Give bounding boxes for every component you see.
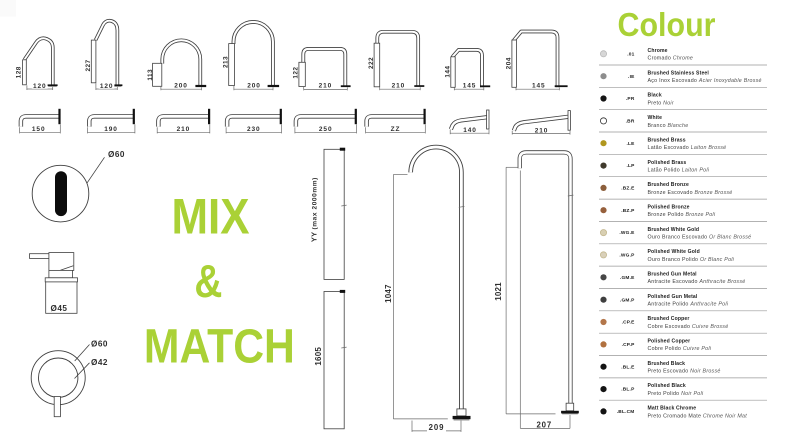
- svg-text:210: 210: [177, 126, 191, 133]
- svg-text:207: 207: [536, 420, 552, 429]
- svg-text:Preto Noir: Preto Noir: [648, 100, 674, 106]
- svg-text:230: 230: [247, 126, 261, 133]
- svg-text:150: 150: [32, 126, 46, 133]
- svg-text:1047: 1047: [384, 284, 393, 303]
- svg-text:Aço Inox Escovado Acier Inoxyd: Aço Inox Escovado Acier Inoxydable Bross…: [648, 78, 762, 84]
- svg-text:Brushed Black: Brushed Black: [648, 361, 686, 367]
- svg-text:.BZ.P: .BZ.P: [621, 208, 635, 214]
- svg-text:210: 210: [392, 83, 406, 90]
- svg-text:Polished Copper: Polished Copper: [648, 339, 691, 345]
- svg-text:1021: 1021: [494, 282, 503, 301]
- svg-text:Antracite Escovado Anthracite: Antracite Escovado Anthracite Brossé: [648, 279, 746, 285]
- svg-text:Ouro Branco Polido Or Blanc Po: Ouro Branco Polido Or Blanc Poli: [648, 257, 735, 263]
- svg-text:Black: Black: [648, 93, 662, 99]
- svg-text:Ø60: Ø60: [91, 340, 108, 349]
- svg-text:.BL.P: .BL.P: [621, 387, 635, 393]
- svg-text:.BZ.E: .BZ.E: [621, 186, 635, 192]
- svg-text:Polished White Gold: Polished White Gold: [648, 249, 700, 255]
- svg-text:Ø45: Ø45: [51, 304, 68, 313]
- svg-text:Brushed Stainless Steel: Brushed Stainless Steel: [648, 70, 710, 76]
- svg-text:&: &: [194, 255, 222, 307]
- svg-text:120: 120: [33, 83, 47, 90]
- svg-text:200: 200: [174, 83, 188, 90]
- svg-text:Preto Polido Noir Poli: Preto Polido Noir Poli: [648, 391, 704, 397]
- svg-text:Brushed Gun Metal: Brushed Gun Metal: [648, 272, 698, 278]
- svg-text:Brushed Brass: Brushed Brass: [648, 137, 686, 143]
- svg-text:Matt Black Chrome: Matt Black Chrome: [648, 406, 697, 412]
- svg-text:MATCH: MATCH: [144, 321, 295, 374]
- svg-text:210: 210: [535, 128, 549, 135]
- svg-text:Cromado Chrome: Cromado Chrome: [648, 56, 694, 62]
- svg-text:Polished Gun Metal: Polished Gun Metal: [648, 294, 698, 300]
- svg-text:.IE: .IE: [628, 74, 635, 80]
- svg-text:Ø60: Ø60: [108, 150, 125, 159]
- svg-text:200: 200: [247, 83, 261, 90]
- svg-text:YY (max 2000mm): YY (max 2000mm): [310, 177, 319, 242]
- svg-text:White: White: [648, 115, 663, 121]
- svg-text:145: 145: [532, 83, 546, 90]
- svg-text:Antracite Polido Anthracite Po: Antracite Polido Anthracite Poli: [648, 302, 729, 308]
- svg-text:.WG.P: .WG.P: [619, 253, 635, 259]
- svg-text:209: 209: [429, 423, 445, 432]
- svg-text:144: 144: [445, 66, 452, 78]
- svg-text:Cobre Polido Cuivre Poli: Cobre Polido Cuivre Poli: [648, 346, 712, 352]
- svg-text:Ouro Branco Escovado Or Blanc: Ouro Branco Escovado Or Blanc Brossé: [648, 235, 752, 241]
- svg-text:.GM.P: .GM.P: [620, 297, 635, 303]
- svg-text:Chrome: Chrome: [648, 48, 668, 54]
- svg-text:.BL.CM: .BL.CM: [617, 409, 635, 415]
- svg-text:Preto Cromado Mate Chrome Noir: Preto Cromado Mate Chrome Noir Mat: [648, 413, 748, 419]
- svg-text:227: 227: [85, 59, 92, 71]
- svg-text:Branco Blanche: Branco Blanche: [648, 123, 689, 129]
- svg-text:ZZ: ZZ: [391, 126, 401, 133]
- svg-text:Cobre Escovado Cuivre Brossé: Cobre Escovado Cuivre Brossé: [648, 324, 729, 330]
- svg-text:.LP: .LP: [626, 163, 635, 169]
- svg-text:Polished Black: Polished Black: [648, 383, 686, 389]
- svg-text:Latão Escovado Laiton Brossé: Latão Escovado Laiton Brossé: [648, 145, 727, 151]
- svg-text:140: 140: [463, 127, 477, 134]
- svg-text:.PR: .PR: [626, 96, 635, 102]
- svg-text:.BL.E: .BL.E: [621, 364, 635, 370]
- svg-text:1605: 1605: [314, 347, 323, 366]
- svg-text:113: 113: [147, 69, 154, 81]
- svg-text:145: 145: [463, 83, 477, 90]
- svg-text:222: 222: [368, 57, 375, 69]
- svg-text:.01: .01: [627, 51, 634, 57]
- svg-text:Polished Bronze: Polished Bronze: [648, 204, 690, 210]
- svg-text:Colour: Colour: [618, 7, 716, 44]
- svg-text:190: 190: [104, 126, 118, 133]
- svg-text:.BR: .BR: [626, 119, 635, 125]
- svg-text:250: 250: [319, 126, 333, 133]
- svg-text:.GM.E: .GM.E: [620, 275, 635, 281]
- svg-text:120: 120: [100, 83, 114, 90]
- svg-text:210: 210: [319, 83, 333, 90]
- svg-text:Preto Escovado Noir Brossé: Preto Escovado Noir Brossé: [648, 369, 721, 375]
- svg-text:Ø42: Ø42: [91, 358, 108, 367]
- svg-text:.CP.P: .CP.P: [622, 342, 636, 348]
- svg-text:.CP.E: .CP.E: [622, 320, 636, 326]
- svg-text:128: 128: [16, 66, 23, 78]
- svg-text:.WG.E: .WG.E: [619, 230, 635, 236]
- svg-text:Bronze Escovado Bronze Brossé: Bronze Escovado Bronze Brossé: [648, 190, 733, 196]
- svg-text:Polished Brass: Polished Brass: [648, 160, 687, 166]
- svg-text:213: 213: [222, 56, 229, 68]
- svg-text:204: 204: [506, 57, 513, 69]
- svg-text:Latão Polido Laiton Poli: Latão Polido Laiton Poli: [648, 168, 710, 174]
- svg-text:Bronze Polido Bronze Poli: Bronze Polido Bronze Poli: [648, 212, 716, 218]
- svg-text:.LE: .LE: [626, 141, 635, 147]
- svg-text:122: 122: [293, 67, 300, 79]
- svg-text:MIX: MIX: [172, 189, 250, 245]
- svg-text:Brushed Copper: Brushed Copper: [648, 316, 690, 322]
- svg-text:Brushed Bronze: Brushed Bronze: [648, 182, 689, 188]
- svg-text:Brushed White Gold: Brushed White Gold: [648, 227, 700, 233]
